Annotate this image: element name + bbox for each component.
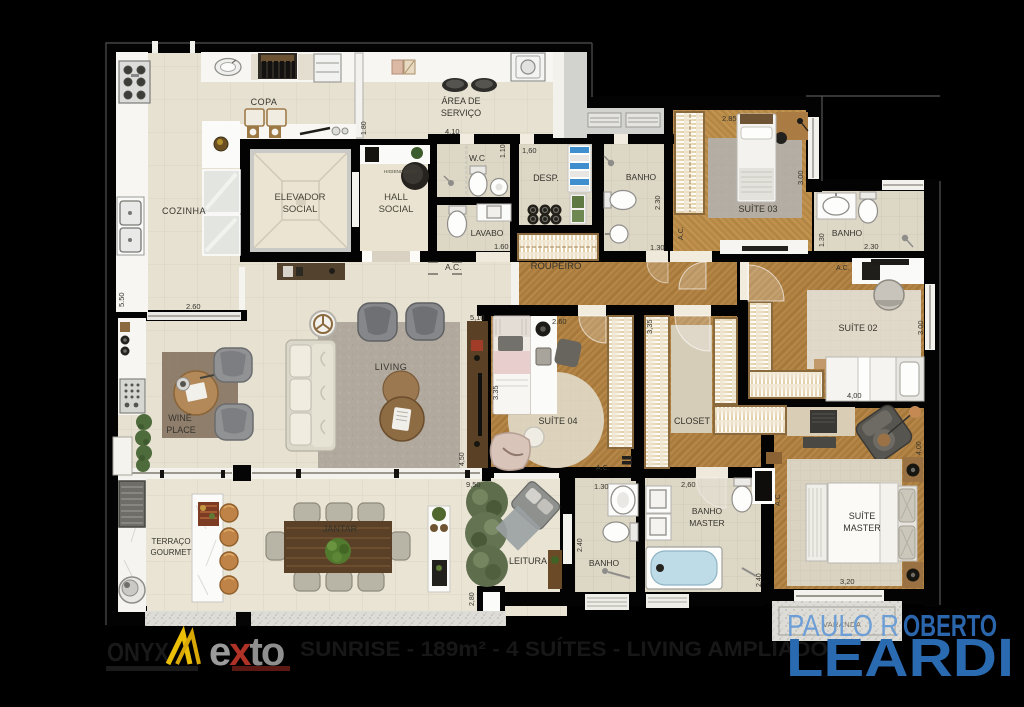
svg-text:LEARDI: LEARDI	[786, 628, 1014, 688]
svg-text:BANHO: BANHO	[832, 228, 863, 238]
svg-text:1.80: 1.80	[361, 121, 368, 135]
svg-text:1.30: 1.30	[650, 243, 665, 252]
svg-text:ÁREA DE: ÁREA DE	[441, 96, 480, 106]
svg-text:A.C.: A.C.	[678, 226, 685, 240]
svg-text:SOCIAL: SOCIAL	[379, 204, 414, 215]
svg-text:PLACE: PLACE	[166, 425, 196, 435]
svg-text:2.30: 2.30	[653, 195, 662, 210]
svg-text:JANTAR: JANTAR	[323, 524, 358, 534]
svg-text:2,60: 2,60	[681, 480, 696, 489]
svg-text:1.10: 1.10	[500, 144, 507, 158]
svg-text:2,40: 2,40	[756, 573, 763, 587]
svg-text:5,10: 5,10	[470, 313, 485, 322]
svg-text:TERRAÇO: TERRAÇO	[151, 537, 190, 546]
svg-text:2.85: 2.85	[722, 114, 737, 123]
svg-text:COZINHA: COZINHA	[162, 206, 206, 216]
svg-text:LIVING: LIVING	[375, 362, 408, 372]
svg-text:SUÍTE 04: SUÍTE 04	[538, 416, 577, 426]
svg-text:2.30: 2.30	[864, 242, 879, 251]
svg-text:A.C: A.C	[775, 494, 782, 506]
svg-text:1.30: 1.30	[819, 233, 826, 247]
svg-text:DESP.: DESP.	[533, 173, 559, 183]
svg-text:4,00: 4,00	[916, 441, 923, 455]
svg-text:ROUPEIRO: ROUPEIRO	[531, 261, 582, 272]
svg-text:4.10: 4.10	[445, 127, 460, 136]
svg-text:BANHO: BANHO	[692, 506, 723, 516]
svg-text:GOURMET: GOURMET	[151, 548, 192, 557]
svg-text:SUÍTE 03: SUÍTE 03	[738, 204, 777, 214]
svg-text:CLOSET: CLOSET	[674, 416, 711, 426]
svg-text:COPA: COPA	[251, 97, 278, 107]
svg-text:HALL: HALL	[384, 192, 408, 203]
svg-text:MASTER: MASTER	[843, 523, 881, 533]
svg-text:SUÍTE 02: SUÍTE 02	[838, 323, 877, 333]
svg-text:BANHO: BANHO	[589, 558, 620, 568]
svg-text:2,80: 2,80	[469, 592, 476, 606]
svg-text:3,20: 3,20	[840, 577, 855, 586]
svg-text:ELEVADOR: ELEVADOR	[274, 192, 325, 203]
svg-text:1.60: 1.60	[494, 242, 509, 251]
svg-text:9,50: 9,50	[466, 480, 481, 489]
svg-text:4,50: 4,50	[459, 452, 466, 466]
svg-text:3.00: 3.00	[916, 320, 925, 335]
svg-text:ONYX: ONYX	[107, 637, 170, 667]
svg-text:LAVABO: LAVABO	[471, 228, 504, 238]
svg-text:LEITURA: LEITURA	[509, 556, 547, 566]
svg-text:A.C.: A.C.	[596, 465, 610, 472]
svg-text:W.C: W.C	[469, 153, 485, 163]
svg-text:SUNRISE - 189m² - 4 SUÍTES - L: SUNRISE - 189m² - 4 SUÍTES - LIVING AMPL…	[300, 638, 828, 661]
svg-text:A.C.: A.C.	[445, 262, 462, 272]
svg-text:2.60: 2.60	[186, 302, 201, 311]
svg-text:BANHO: BANHO	[626, 172, 657, 182]
svg-text:2.60: 2.60	[552, 317, 567, 326]
svg-text:3,35: 3,35	[645, 319, 654, 334]
svg-text:A.C.: A.C.	[836, 265, 850, 272]
svg-text:HIGIENIZAÇÃO: HIGIENIZAÇÃO	[384, 168, 417, 174]
svg-text:MASTER: MASTER	[689, 518, 724, 528]
svg-text:SUÍTE: SUÍTE	[849, 511, 876, 521]
svg-text:SOCIAL: SOCIAL	[283, 204, 318, 215]
svg-text:1.30: 1.30	[594, 482, 609, 491]
svg-text:1,60: 1,60	[522, 146, 537, 155]
svg-text:4,00: 4,00	[847, 391, 862, 400]
svg-text:2.40: 2.40	[577, 538, 584, 552]
svg-text:5.50: 5.50	[117, 292, 126, 307]
svg-text:3.35: 3.35	[491, 385, 500, 400]
svg-text:3.00: 3.00	[796, 170, 805, 185]
svg-text:SERVIÇO: SERVIÇO	[441, 108, 481, 118]
svg-text:WINE: WINE	[168, 413, 192, 423]
